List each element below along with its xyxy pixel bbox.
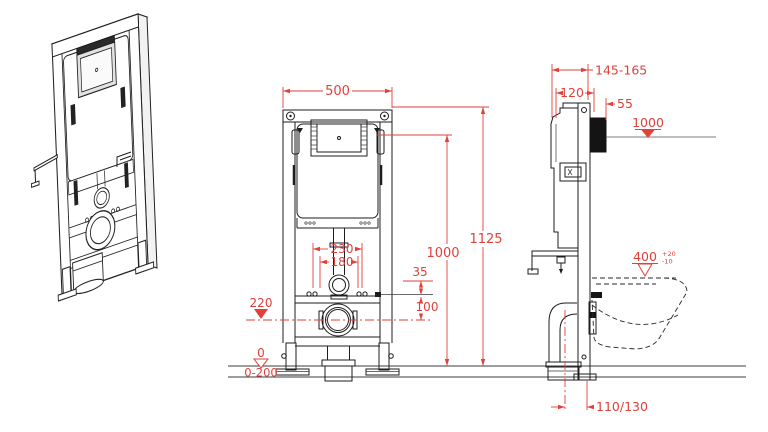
dim-label-depth-range: 145-165: [595, 63, 647, 78]
dim-side-plate-offset: 55: [606, 96, 633, 120]
dim-label-fixing-to-drain: 100: [416, 300, 439, 314]
dim-label-inlet-offset: 35: [412, 265, 427, 279]
level-marker-400: [638, 264, 652, 276]
isometric-view: [26, 12, 157, 309]
side-dimensions: 145-165 120 55 1000 400: [551, 63, 676, 415]
dim-label-bolt-outer: 230: [331, 242, 354, 256]
dim-label-side-plate-height: 1000: [632, 115, 664, 130]
isometric-frame: [26, 12, 154, 309]
dim-label-bowl-tol-minus: -10: [662, 258, 673, 266]
dim-front-bolt-inner: 180: [320, 255, 358, 288]
dim-label-plate-offset: 55: [617, 96, 633, 111]
front-view: [276, 110, 433, 381]
dim-front-floor: 0 0-200: [244, 346, 277, 380]
dim-label-plate-height: 1000: [426, 246, 459, 261]
technical-drawing-page: 500 1125 1000 230: [0, 0, 768, 432]
dim-label-drain-height: 220: [250, 296, 273, 310]
level-marker-220: [254, 309, 268, 319]
dim-side-plate-height: 1000: [632, 115, 664, 138]
side-view: [528, 103, 716, 380]
fixing-mark: [375, 292, 381, 297]
dim-label-floor: 0: [257, 346, 265, 360]
dim-label-floor-range: 0-200: [244, 366, 277, 380]
technical-drawing-canvas: 500 1125 1000 230: [0, 0, 768, 432]
dim-front-fixing-to-drain: 100: [416, 297, 439, 320]
flush-plate-box: [590, 118, 606, 152]
dim-label-frame-depth: 120: [560, 85, 584, 100]
dim-label-total-height: 1125: [469, 232, 502, 247]
dim-label-bolt-inner: 180: [331, 255, 354, 269]
dim-front-width: 500: [283, 84, 392, 108]
dim-front-inlet-offset: 35: [403, 265, 433, 295]
dim-front-plate-height: 1000: [377, 135, 460, 366]
dim-label-drain-distance: 110/130: [596, 399, 648, 414]
dim-side-bowl-height: 400 +20 -10: [632, 249, 676, 276]
dim-label-width: 500: [325, 84, 350, 99]
dim-label-bowl-height: 400: [633, 249, 657, 264]
